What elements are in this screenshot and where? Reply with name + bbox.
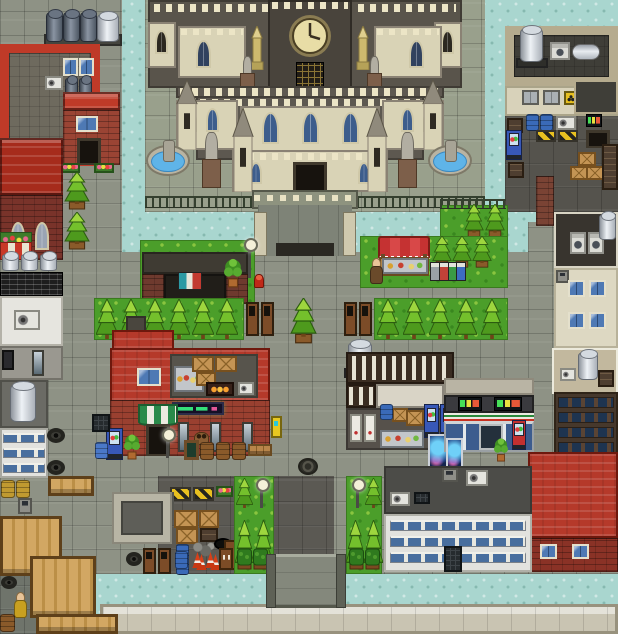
south-warehouse-ac-2 (466, 470, 488, 486)
factory-tank-3 (80, 12, 97, 42)
clock-face (288, 14, 332, 58)
shop-trashcan (95, 442, 108, 459)
fountain-right (428, 140, 472, 176)
ne-barrel-2 (540, 114, 553, 131)
ne-roof-tank (520, 28, 543, 62)
cream-window-2 (589, 280, 606, 297)
south-right-tree-1 (365, 478, 382, 508)
white-tank-3 (40, 254, 57, 271)
shop-deck-crate-2 (215, 356, 237, 372)
path-tree-1 (64, 172, 90, 210)
shop-deck-ac (238, 382, 254, 395)
factory-window-2 (79, 58, 94, 76)
shop-bench (248, 444, 272, 456)
restaurant-door-2[interactable] (364, 414, 376, 442)
ne-barrel-1 (526, 114, 539, 131)
church-window-2 (35, 222, 49, 250)
shop-plant (124, 432, 140, 460)
kiosk-door-3[interactable] (344, 302, 357, 336)
stall-tree-3 (472, 236, 492, 268)
south-bridge[interactable] (266, 554, 346, 608)
fountain-left (146, 140, 190, 176)
cathedral-left-tower-window (155, 30, 168, 54)
hall-window-3 (342, 112, 359, 144)
cathedral-right-wing-window (409, 40, 424, 68)
south-warehouse-roof2 (384, 466, 532, 514)
small-machine (18, 498, 32, 514)
gold-barrel-2 (16, 480, 30, 498)
south-warehouse-ac-1 (390, 492, 410, 506)
cream-window-3 (568, 312, 585, 329)
stall-npc[interactable] (368, 258, 383, 284)
front-turret-left (232, 108, 254, 192)
path-tree-2 (64, 212, 90, 250)
south-left-lamp (255, 478, 267, 508)
shed-2 (30, 556, 96, 618)
canal-grass-tree-2 (485, 204, 505, 238)
se-window-2 (572, 544, 589, 559)
shop-deck-crate-1 (192, 356, 214, 372)
restaurant-crate-2 (406, 410, 424, 426)
store-roof (444, 378, 534, 395)
se-dark-windows-1 (558, 397, 614, 408)
shop-grate (92, 414, 110, 432)
ne-cabinet (602, 144, 618, 190)
laundry-washer-1[interactable] (570, 232, 586, 254)
restaurant-counter (380, 430, 424, 448)
store-plant (494, 436, 508, 462)
game-map[interactable] (0, 0, 618, 634)
plaza-tree-planter (290, 298, 317, 344)
east-tree-2 (403, 299, 425, 339)
stone-platform-pit (121, 501, 163, 535)
wharf-hedge-1 (237, 548, 252, 570)
shop-neon-sign[interactable] (172, 402, 224, 415)
cathedral-right-wing-trim (377, 29, 439, 35)
dock-barrel (0, 614, 15, 632)
factory-tank-1 (46, 12, 63, 42)
factory-tank-2 (63, 12, 80, 42)
grounds-fence-left (145, 196, 253, 208)
tire-stack-1 (47, 428, 65, 443)
south-right-lamp (351, 478, 363, 508)
clock-tower-trim (272, 2, 348, 9)
restaurant-door-1[interactable] (350, 414, 362, 442)
kiosk-door-1[interactable] (246, 302, 259, 336)
wharf-sign[interactable] (219, 548, 233, 570)
kiosk-door-4[interactable] (359, 302, 372, 336)
ne-wall-window-2 (543, 90, 560, 105)
laundry-tank (599, 214, 616, 240)
cathedral-left-wing-trim (181, 29, 243, 35)
recycle-bins[interactable] (430, 262, 466, 281)
tank-roof-ac (560, 368, 576, 381)
ne-wall-window-1 (522, 90, 539, 105)
ne-vending[interactable] (506, 130, 522, 160)
restaurant-barrel (380, 404, 393, 420)
ne-annex-roof (574, 80, 618, 114)
stall-table (382, 258, 428, 274)
black-brick-building (0, 272, 63, 296)
hall-window-1 (262, 112, 279, 144)
wharf-hedge-3 (349, 548, 364, 570)
church-roof (0, 138, 63, 195)
shed-3 (36, 614, 118, 634)
ne-crate-3 (578, 152, 596, 166)
gate-lamp (243, 238, 255, 278)
factory-window-1 (63, 58, 78, 76)
wharf-barrel (175, 551, 188, 569)
left-warehouse-windows-1 (3, 433, 45, 443)
front-turret-right (366, 108, 388, 192)
fire-hydrant[interactable] (254, 274, 264, 288)
ne-ac (556, 116, 576, 130)
junk-pile (190, 540, 216, 558)
ne-shelf-2 (508, 162, 524, 178)
restaurant-roof-slats (352, 356, 448, 380)
east-tree-3 (429, 299, 451, 339)
store-poster-2[interactable] (494, 397, 522, 411)
wharf-hedge-4 (365, 548, 380, 570)
cathedral-bridge[interactable] (252, 190, 358, 256)
south-warehouse-vent (414, 492, 430, 504)
shop-barrel-1 (200, 442, 214, 460)
gate-banner[interactable] (178, 272, 202, 290)
gate-plant (224, 256, 242, 288)
annex-window (76, 116, 98, 132)
south-left-tree-1 (236, 478, 253, 508)
gray-building-window (32, 350, 44, 376)
white-tank-1 (2, 254, 19, 271)
construction-flowerbox-1 (216, 486, 233, 497)
construction-crate-1 (174, 510, 198, 528)
cathedral-front-trim (236, 153, 384, 160)
store-vending-red[interactable] (512, 420, 526, 450)
shop-chalkboard[interactable] (184, 440, 199, 460)
shop-side-sign[interactable] (271, 416, 282, 438)
side-window-r1 (401, 108, 414, 132)
se-window-1 (540, 544, 557, 559)
caution-barrier-2 (193, 487, 214, 501)
ne-caution-2 (558, 130, 578, 142)
east-tree-4 (455, 299, 477, 339)
dock-tire (1, 576, 17, 589)
shop-roof-window (137, 368, 161, 386)
tank-roof-tank (578, 352, 598, 380)
s-warehouse-grate-door[interactable] (444, 546, 462, 572)
rooftop-vent (14, 310, 40, 330)
kiosk-door-2[interactable] (261, 302, 274, 336)
restaurant-vending-1[interactable] (424, 404, 439, 438)
cathedral-left-wing-window (196, 40, 211, 68)
store-poster-1[interactable] (458, 397, 482, 411)
annex-flowerbox-right (94, 163, 114, 173)
tank-roof-shelf (598, 370, 614, 387)
hall-window-2 (302, 112, 319, 144)
gray-building-sign (2, 350, 14, 370)
rooftop-silo (10, 384, 36, 422)
shop-lamp (162, 428, 172, 458)
wharf-door-1[interactable] (143, 548, 156, 574)
ne-caution-1 (536, 130, 556, 142)
south-building-roof (100, 604, 618, 634)
canal-grass-tree-1 (464, 204, 484, 238)
wharf-tire (126, 552, 142, 566)
restaurant-left-slats (349, 387, 373, 405)
factory-silo (97, 14, 119, 42)
wharf-door-2[interactable] (158, 548, 171, 574)
shop-barrel-3 (232, 442, 246, 460)
s-warehouse-windows-1 (390, 520, 526, 531)
se-dark-windows-3 (558, 427, 614, 438)
east-tree-1 (377, 299, 399, 339)
brick-pier (536, 176, 554, 226)
shop-awning (138, 404, 178, 426)
cathedral-right-tower-window (441, 30, 454, 54)
left-warehouse-windows-2 (3, 448, 45, 458)
ne-roof-box-2 (572, 44, 600, 60)
annex-door[interactable] (77, 138, 101, 165)
side-window-l2 (206, 108, 219, 132)
plaza-manhole[interactable] (298, 458, 318, 475)
statue-right (398, 132, 415, 188)
lumber-pile (48, 476, 94, 496)
cream-window-4 (589, 312, 606, 329)
west-tree-6 (216, 299, 238, 339)
tire-stack-2 (47, 460, 65, 475)
cathedral-entrance[interactable] (293, 162, 327, 192)
west-tree-5 (192, 299, 214, 339)
gold-barrel-1 (1, 480, 15, 498)
shop-vending[interactable] (106, 428, 123, 460)
ne-poster[interactable] (586, 114, 602, 127)
cathedral-mid-trim (180, 88, 440, 96)
white-tank-2 (21, 254, 38, 271)
se-dark-windows-2 (558, 412, 614, 423)
shop-barrel-2 (216, 442, 230, 460)
left-warehouse-windows-3 (3, 463, 45, 473)
cream-window-1 (568, 280, 585, 297)
east-tree-5 (481, 299, 503, 339)
se-red-roof (528, 452, 618, 538)
annex-roof (63, 92, 120, 110)
shop-oven (206, 382, 234, 396)
construction-crate-2 (199, 510, 219, 528)
ne-roof-box-1 (550, 42, 570, 60)
south-warehouse-box (442, 468, 458, 482)
statue-left (202, 132, 219, 188)
factory-ac (45, 76, 63, 90)
